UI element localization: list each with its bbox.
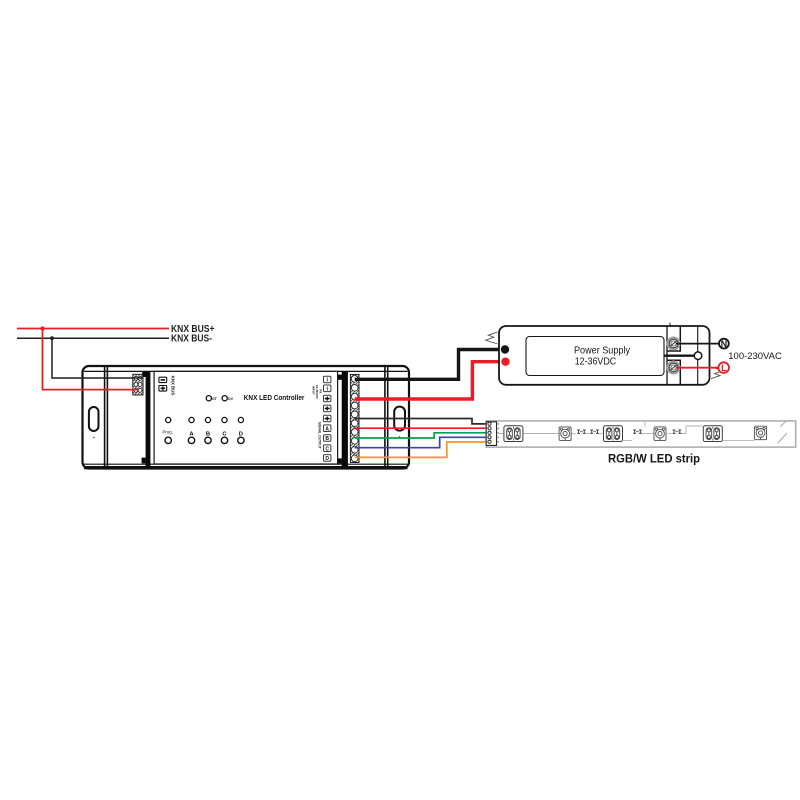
svg-text:C: C — [325, 446, 329, 452]
svg-text:PN: PN — [318, 389, 322, 393]
svg-text:KNX BUS-: KNX BUS- — [171, 333, 212, 344]
svg-text:B: B — [325, 436, 329, 442]
svg-text:Prog.: Prog. — [162, 430, 173, 435]
svg-text:A: A — [325, 426, 329, 432]
svg-text:INPUT: INPUT — [311, 386, 315, 395]
svg-text:OT: OT — [212, 397, 218, 401]
svg-text:SIGNAL OUTPUT: SIGNAL OUTPUT — [317, 422, 321, 449]
svg-text:Power Supply: Power Supply — [574, 346, 631, 357]
svg-text:100-230VAC: 100-230VAC — [728, 351, 782, 361]
svg-text:KNX BUS: KNX BUS — [171, 376, 176, 396]
svg-text:12-36VDC: 12-36VDC — [575, 357, 617, 368]
svg-text:KNX LED Controller: KNX LED Controller — [244, 395, 305, 402]
svg-text:OV: OV — [228, 397, 234, 401]
svg-text:L: L — [721, 362, 727, 373]
svg-text:N: N — [721, 339, 727, 349]
svg-text:D: D — [325, 456, 329, 462]
svg-text:12-36VDC: 12-36VDC — [315, 385, 319, 400]
svg-text:RGB/W LED strip: RGB/W LED strip — [608, 452, 700, 465]
